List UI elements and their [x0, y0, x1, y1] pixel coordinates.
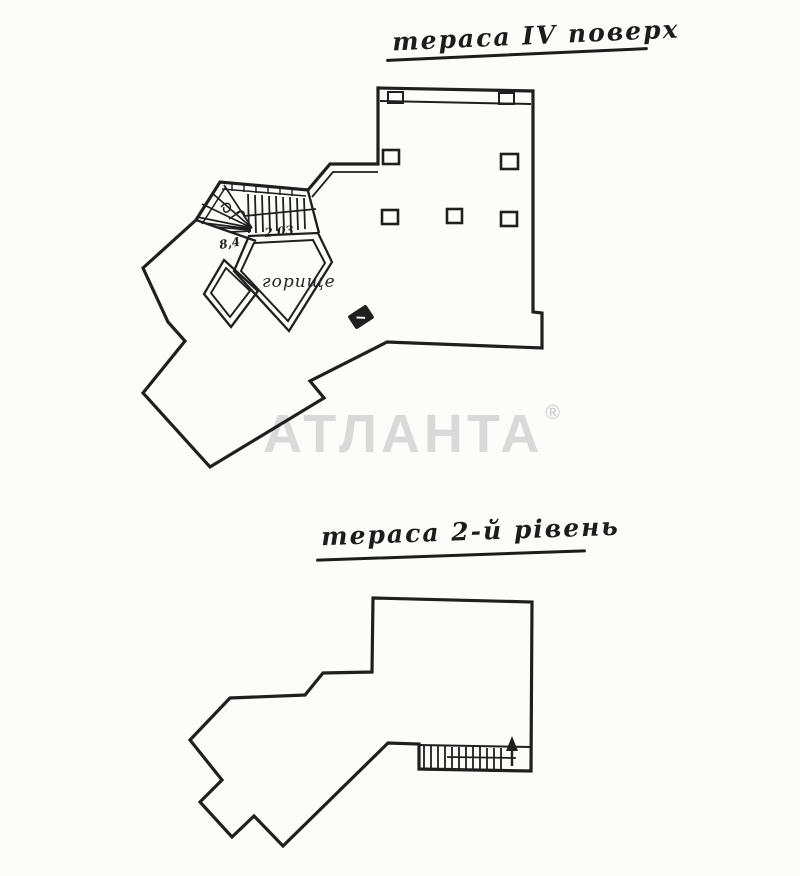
- floor-plan-drawing: 2.03 8,4 горище: [0, 0, 800, 876]
- column-post: [501, 212, 517, 226]
- stair-area-label: 8,4: [218, 235, 241, 252]
- column-posts: [382, 150, 518, 226]
- column-post: [447, 209, 462, 223]
- parapet-tab-right: [499, 93, 514, 104]
- lower-outer-wall: [190, 598, 532, 846]
- stair-stringer: [447, 757, 516, 758]
- column-post: [382, 210, 398, 224]
- column-post: [383, 150, 399, 164]
- column-post: [501, 154, 518, 169]
- stair-dimension-label: 2.03: [263, 223, 295, 240]
- side-room: [204, 260, 258, 327]
- winder-treads: [197, 185, 252, 232]
- chimney-marker: [347, 304, 374, 329]
- staircase-lower: [419, 736, 531, 771]
- upper-outer-wall: [143, 88, 542, 467]
- lower-floor-plan: [190, 598, 532, 846]
- attic-label: горище: [262, 272, 336, 292]
- upper-floor-plan: 2.03 8,4 горище: [143, 88, 542, 467]
- staircase-upper: 2.03 8,4: [196, 184, 319, 252]
- scanned-floor-plan-page: АТЛАНТА® тераса ІV поверх тераса 2-й рів…: [0, 0, 800, 876]
- stair-direction-arrow: [506, 736, 518, 766]
